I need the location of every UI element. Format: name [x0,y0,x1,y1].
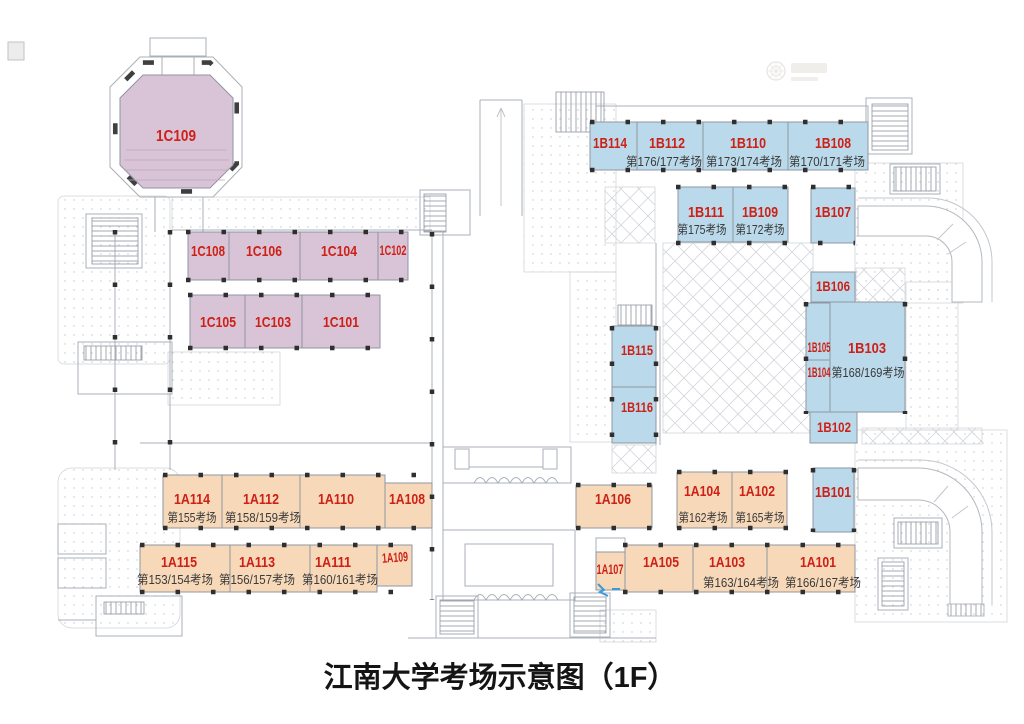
room-label-1b109: 1B109 [742,204,778,221]
room-label-1a107: 1A107 [597,562,624,577]
room-label-1a106: 1A106 [595,491,631,508]
exam-label-1b109: 第172考场 [736,223,785,237]
exam-label-1a101: 第166/167考场 [785,576,861,590]
faint-company-seal-logo-icon [767,62,827,81]
room-label-1b110: 1B110 [730,135,766,152]
room-label-1b108: 1B108 [815,135,851,152]
exam-label-1a112: 第158/159考场 [225,511,301,525]
exam-label-1b112: 第176/177考场 [626,155,702,169]
room-label-1b107: 1B107 [815,204,851,221]
exam-label-1b111: 第175考场 [678,223,727,237]
room-label-1b116: 1B116 [621,400,653,415]
page-title: 江南大学考场示意图（1F） [324,660,677,694]
floor-plan-svg: 1C109 1C108 1C106 1C104 1C102 1C105 1C10… [0,0,1024,724]
room-label-1a105: 1A105 [643,554,679,571]
room-label-1a103: 1A103 [709,554,745,571]
room-label-1b111: 1B111 [688,204,724,221]
room-1b103 [830,302,905,412]
exam-label-1b108: 第170/171考场 [789,155,865,169]
exam-label-1b103: 第168/169考场 [832,366,905,380]
room-label-1b103: 1B103 [848,340,886,357]
room-label-1c101: 1C101 [323,314,359,331]
room-label-1b115: 1B115 [621,343,653,358]
exam-label-1a104: 第162考场 [679,511,728,525]
exam-label-1a114: 第155考场 [168,511,217,525]
room-label-1b102: 1B102 [817,420,851,435]
room-label-1c102: 1C102 [380,243,407,258]
exam-label-1a103: 第163/164考场 [703,576,779,590]
exam-label-1a111: 第160/161考场 [302,573,378,587]
room-label-1a110: 1A110 [318,491,354,508]
room-label-1b104: 1B104 [808,365,831,380]
exam-label-1a115: 第153/154考场 [137,573,213,587]
room-label-1c106: 1C106 [246,243,282,260]
room-label-1c104: 1C104 [321,243,358,260]
room-label-1a109: 1A109 [382,549,409,566]
room-1b116 [612,387,656,443]
room-label-1c109: 1C109 [156,128,196,145]
exam-label-1b110: 第173/174考场 [706,155,782,169]
room-label-1c108: 1C108 [191,243,225,260]
room-label-1a113: 1A113 [239,554,275,571]
exam-label-1a113: 第156/157考场 [219,573,295,587]
room-label-1a104: 1A104 [684,483,721,500]
room-label-1a111: 1A111 [315,554,351,571]
room-label-1a114: 1A114 [174,491,211,508]
room-label-1b105: 1B105 [808,340,831,355]
room-label-1b114: 1B114 [593,135,628,152]
room-label-1c105: 1C105 [200,314,236,331]
room-label-1b101: 1B101 [815,484,851,501]
room-label-1a115: 1A115 [161,554,197,571]
room-label-1a112: 1A112 [243,491,279,508]
room-label-1b106: 1B106 [816,279,850,294]
floor-plan-page: 1C109 1C108 1C106 1C104 1C102 1C105 1C10… [0,0,1024,724]
room-label-1c103: 1C103 [255,314,291,331]
room-label-1a101: 1A101 [800,554,836,571]
room-label-1a102: 1A102 [739,483,775,500]
exam-label-1a102: 第165考场 [736,511,785,525]
room-label-1a108: 1A108 [389,491,425,508]
room-label-1b112: 1B112 [649,135,685,152]
